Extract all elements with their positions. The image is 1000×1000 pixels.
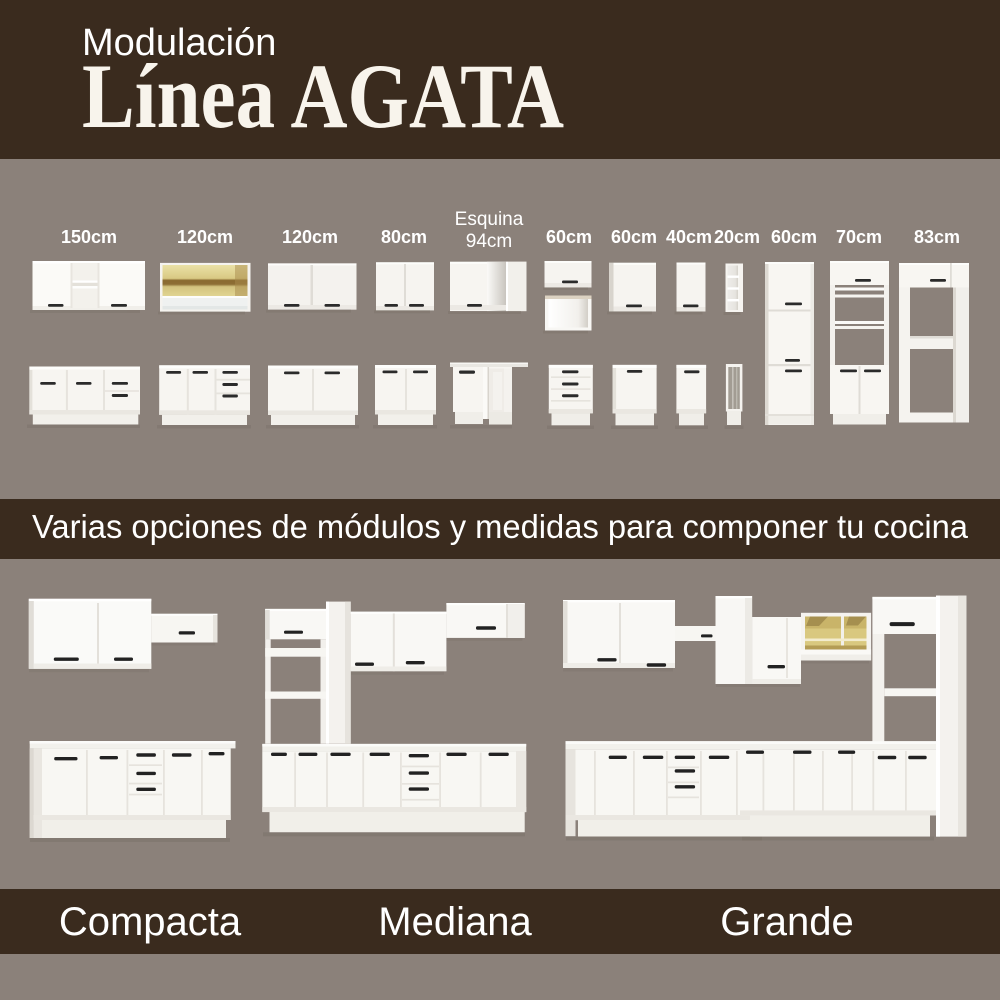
svg-text:Mediana: Mediana <box>378 900 532 944</box>
svg-text:150cm: 150cm <box>61 227 117 247</box>
svg-text:70cm: 70cm <box>836 227 882 247</box>
svg-text:Esquina: Esquina <box>455 209 524 230</box>
svg-text:94cm: 94cm <box>466 231 512 252</box>
svg-text:Grande: Grande <box>720 900 853 944</box>
svg-text:Línea AGATA: Línea AGATA <box>82 45 564 147</box>
svg-text:60cm: 60cm <box>546 227 592 247</box>
svg-text:40cm: 40cm <box>666 227 712 247</box>
svg-text:60cm: 60cm <box>611 227 657 247</box>
svg-text:120cm: 120cm <box>177 227 233 247</box>
svg-text:120cm: 120cm <box>282 227 338 247</box>
svg-text:83cm: 83cm <box>914 227 960 247</box>
svg-text:60cm: 60cm <box>771 227 817 247</box>
svg-text:Compacta: Compacta <box>59 900 242 944</box>
svg-text:80cm: 80cm <box>381 227 427 247</box>
svg-text:Varias opciones de módulos y m: Varias opciones de módulos y medidas par… <box>32 508 969 545</box>
svg-text:20cm: 20cm <box>714 227 760 247</box>
